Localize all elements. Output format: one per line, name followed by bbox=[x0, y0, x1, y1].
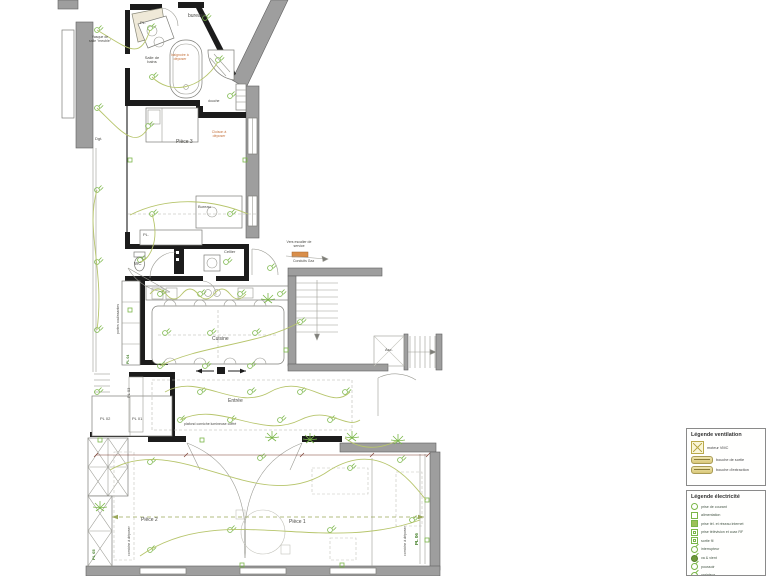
legend-item-label: prise télévision et coax RF bbox=[701, 530, 743, 534]
closet-pl04-strip bbox=[122, 281, 140, 365]
cornice-dashed-axis bbox=[112, 515, 424, 519]
label-piece2: Pièce 2 bbox=[141, 518, 158, 524]
legend-item: bouche de sortie bbox=[691, 456, 761, 464]
door-swings bbox=[128, 8, 416, 558]
label-cellier: Cellier bbox=[224, 250, 235, 254]
label-pl05: PL 05 bbox=[92, 549, 96, 560]
floor-plan-drawing bbox=[0, 0, 768, 576]
legend-item: variateur bbox=[691, 572, 761, 576]
dimmer-icon bbox=[691, 572, 698, 576]
main-staircase bbox=[408, 336, 436, 368]
label-plafond-corniche: plafond corniche lumineuse coffré bbox=[184, 423, 236, 427]
legend-item-label: bouche d'extraction bbox=[716, 468, 749, 472]
shower bbox=[208, 50, 234, 80]
label-dgt: Dgt. bbox=[95, 137, 102, 141]
label-vasque: Vasque de salle "meuble" bbox=[88, 36, 112, 44]
label-baignoire-deposer: baignoire à déposer bbox=[168, 54, 192, 62]
label-pl-piece3: PL. bbox=[143, 233, 149, 237]
label-vers-escalier: Vers escalier de service bbox=[282, 241, 316, 249]
floor-plan-page: bureaux PL. Vasque de salle "meuble" Sal… bbox=[0, 0, 768, 576]
bed bbox=[146, 108, 198, 142]
vmc-unit-icon bbox=[691, 441, 704, 454]
legend-item: prise télévision et coax RF bbox=[691, 529, 761, 536]
legend-item: sortie fil bbox=[691, 537, 761, 544]
label-asc: Asc. bbox=[385, 348, 393, 352]
label-cloison-deposer: Cloison à déposer bbox=[208, 131, 230, 139]
label-bureau: Bureau bbox=[198, 205, 211, 209]
legend-item-label: prise tél. et réseau internet bbox=[701, 522, 744, 526]
legend-item: moteur VMC bbox=[691, 441, 761, 454]
socket-icon bbox=[691, 503, 698, 510]
cornice-lines-piece1 bbox=[420, 454, 425, 564]
legend-ventilation: Légende ventilation moteur VMC bouche de… bbox=[686, 428, 766, 486]
legend-item-label: poussoir bbox=[701, 565, 715, 569]
legend-item-label: prise de courant bbox=[701, 505, 727, 509]
legend-item-label: va & vient bbox=[701, 556, 717, 560]
legend-electricite-title: Légende électricité bbox=[691, 494, 761, 500]
legend-item: interrupteur bbox=[691, 546, 761, 553]
label-portes-coulissantes: portes coulissantes bbox=[117, 304, 121, 334]
supply-icon bbox=[691, 512, 698, 519]
legend-ventilation-title: Légende ventilation bbox=[691, 432, 761, 438]
legend-item-label: alimentation bbox=[701, 513, 720, 517]
closet-pl01-02-03 bbox=[92, 374, 172, 436]
label-conduits-gaz: Conduits Gaz bbox=[293, 260, 314, 264]
label-cuisine: Cuisine bbox=[212, 337, 229, 343]
tv-socket-icon bbox=[691, 529, 698, 536]
label-piece3: Pièce 3 bbox=[176, 140, 193, 146]
bathtub bbox=[170, 40, 202, 98]
label-entree: Entrée bbox=[228, 399, 243, 405]
closet-pl-piece3 bbox=[140, 230, 202, 245]
label-corniche-left: corniche à déposer bbox=[128, 526, 132, 556]
label-piece1: Pièce 1 bbox=[289, 520, 306, 526]
legend-item-label: interrupteur bbox=[701, 547, 719, 551]
kitchen-counter bbox=[146, 286, 288, 300]
label-pl04: PL 04 bbox=[127, 355, 131, 364]
legend-item: prise tél. et réseau internet bbox=[691, 520, 761, 527]
living-furniture bbox=[114, 452, 422, 560]
legend-item: prise de courant bbox=[691, 503, 761, 510]
network-socket-icon bbox=[691, 520, 698, 527]
legend-item: alimentation bbox=[691, 512, 761, 519]
legend-item-label: bouche de sortie bbox=[716, 458, 744, 462]
label-bureaux: bureaux bbox=[188, 14, 206, 20]
legend-item-label: moteur VMC bbox=[707, 446, 728, 450]
label-pl06: PL 06 bbox=[414, 533, 419, 545]
label-wc: WC bbox=[134, 261, 142, 266]
label-pl02: PL 02 bbox=[100, 417, 110, 421]
label-douche: douche bbox=[208, 100, 219, 104]
cellier-door-arcs bbox=[252, 249, 278, 275]
legend-item: va & vient bbox=[691, 555, 761, 562]
legend-item-label: sortie fil bbox=[701, 539, 713, 543]
washing-machine bbox=[204, 255, 220, 271]
duct-outlet-icon bbox=[691, 456, 713, 464]
kitchen-island bbox=[152, 300, 284, 364]
label-corniche-right: corniche à déposer bbox=[404, 526, 408, 556]
gas-duct-marker bbox=[292, 252, 308, 257]
duct-extract-icon bbox=[691, 466, 713, 474]
label-pl-top: PL. bbox=[140, 21, 146, 25]
wardrobe-pl05 bbox=[88, 438, 128, 566]
legend-item: bouche d'extraction bbox=[691, 466, 761, 474]
label-pl01: PL 01 bbox=[132, 417, 142, 421]
legend-item: poussoir bbox=[691, 563, 761, 570]
label-salle-de-bains: Salle de bains bbox=[143, 56, 161, 65]
legend-electricite: Légende électricité prise de courant ali… bbox=[686, 490, 766, 576]
label-pl03: PL 03 bbox=[127, 388, 131, 398]
towel-radiator bbox=[236, 84, 246, 110]
service-staircase bbox=[296, 280, 338, 340]
